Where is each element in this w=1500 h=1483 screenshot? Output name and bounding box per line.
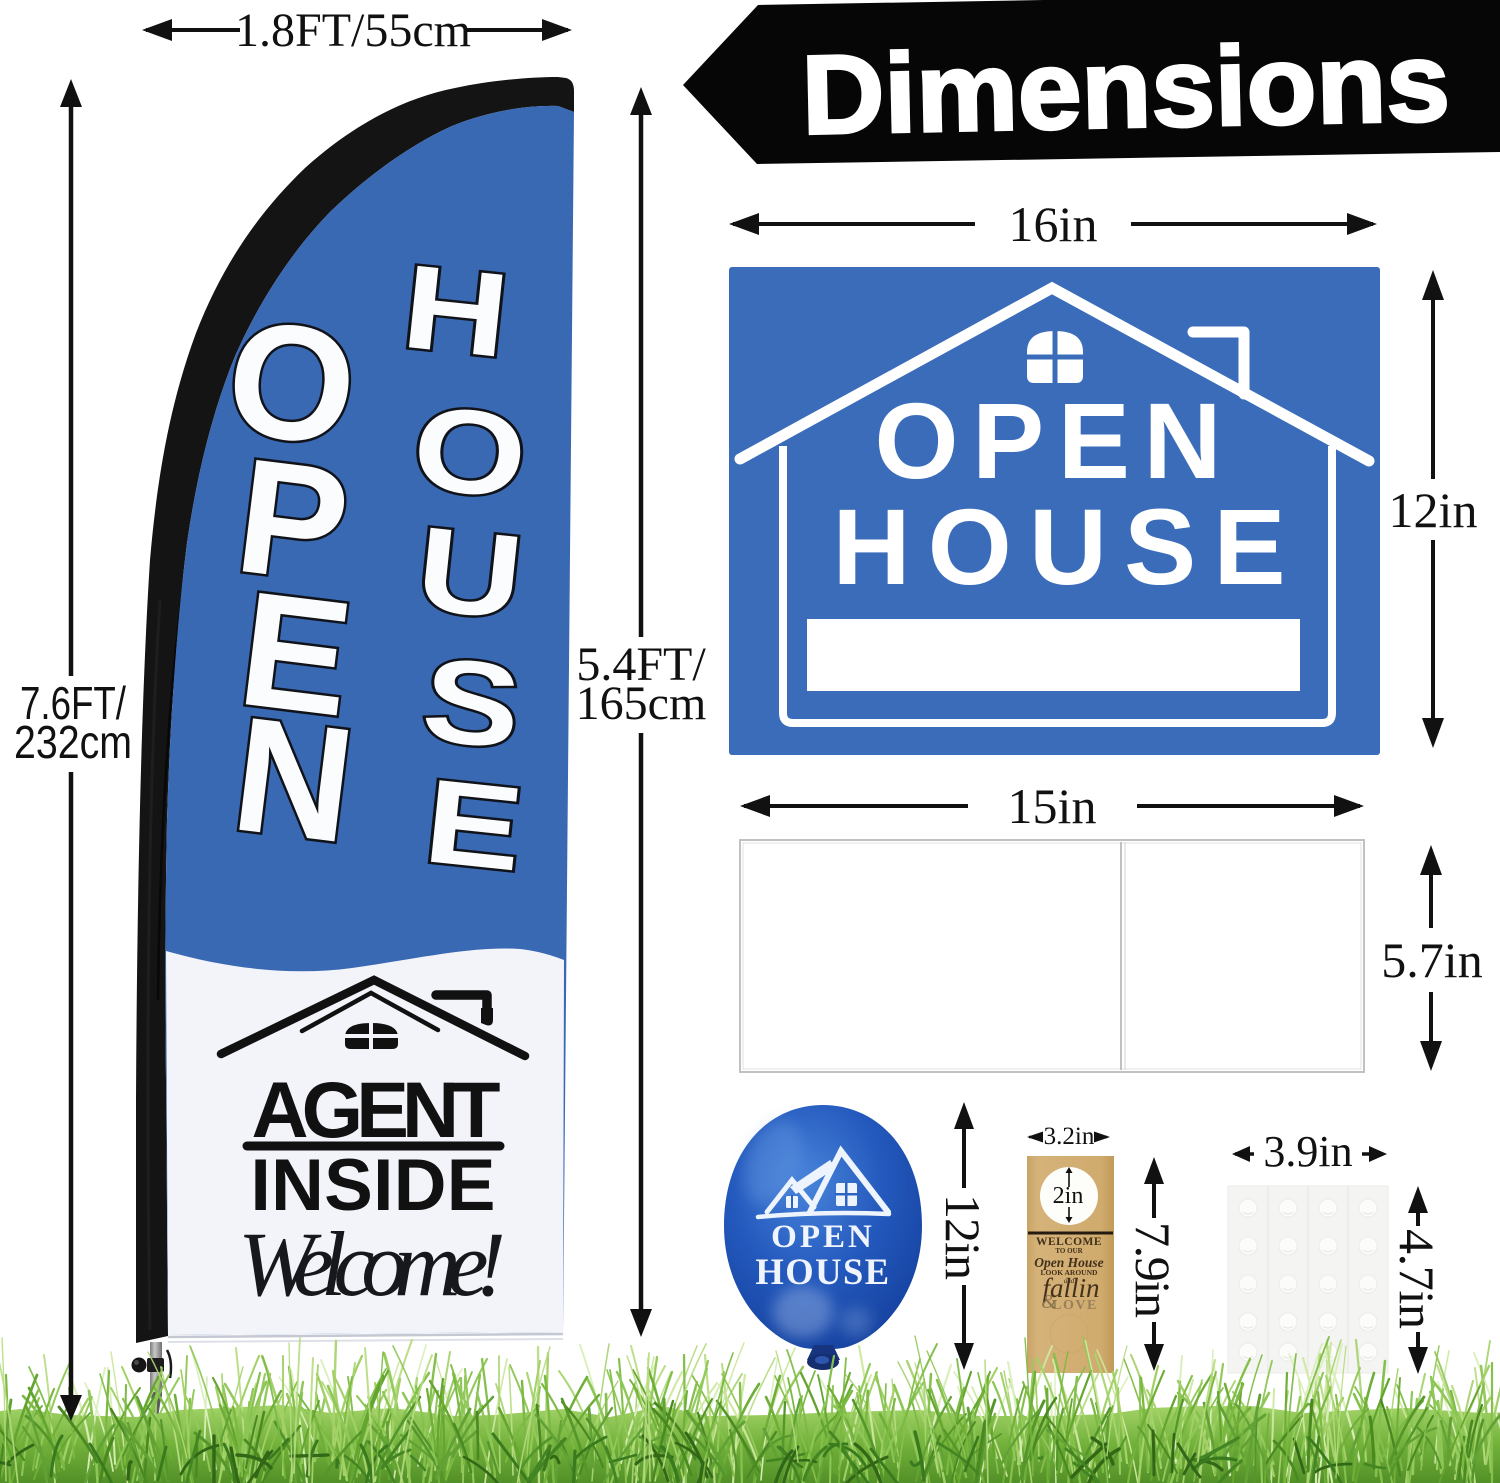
svg-text:3.9in: 3.9in	[1263, 1127, 1352, 1176]
svg-text:232cm: 232cm	[14, 716, 132, 768]
svg-text:7.9in: 7.9in	[1125, 1222, 1181, 1318]
svg-text:TO OUR: TO OUR	[1055, 1247, 1083, 1255]
svg-text:&: &	[1041, 1291, 1057, 1313]
svg-text:12in: 12in	[1389, 482, 1478, 538]
svg-text:N: N	[224, 681, 363, 877]
svg-text:Welcome!: Welcome!	[238, 1213, 506, 1315]
svg-text:5.7in: 5.7in	[1381, 932, 1482, 988]
svg-text:HOUSE: HOUSE	[755, 1251, 890, 1292]
svg-text:15in: 15in	[1008, 778, 1097, 834]
svg-text:OPEN: OPEN	[771, 1219, 875, 1255]
svg-text:1.8FT/55cm: 1.8FT/55cm	[235, 4, 471, 57]
svg-text:S: S	[417, 633, 527, 775]
svg-text:HOUSE: HOUSE	[833, 486, 1286, 607]
svg-text:16in: 16in	[1009, 196, 1098, 252]
svg-text:12in: 12in	[935, 1194, 991, 1280]
svg-text:LOVE: LOVE	[1052, 1298, 1098, 1313]
svg-text:U: U	[411, 502, 529, 645]
svg-text:Dimensions: Dimensions	[801, 19, 1451, 158]
svg-text:3.2in: 3.2in	[1044, 1123, 1095, 1150]
svg-text:H: H	[397, 240, 515, 383]
svg-text:AGENT: AGENT	[252, 1065, 501, 1154]
svg-text:4.7in: 4.7in	[1389, 1229, 1445, 1329]
svg-text:E: E	[419, 755, 529, 897]
svg-text:165cm: 165cm	[576, 677, 707, 730]
svg-text:2in: 2in	[1053, 1183, 1084, 1209]
